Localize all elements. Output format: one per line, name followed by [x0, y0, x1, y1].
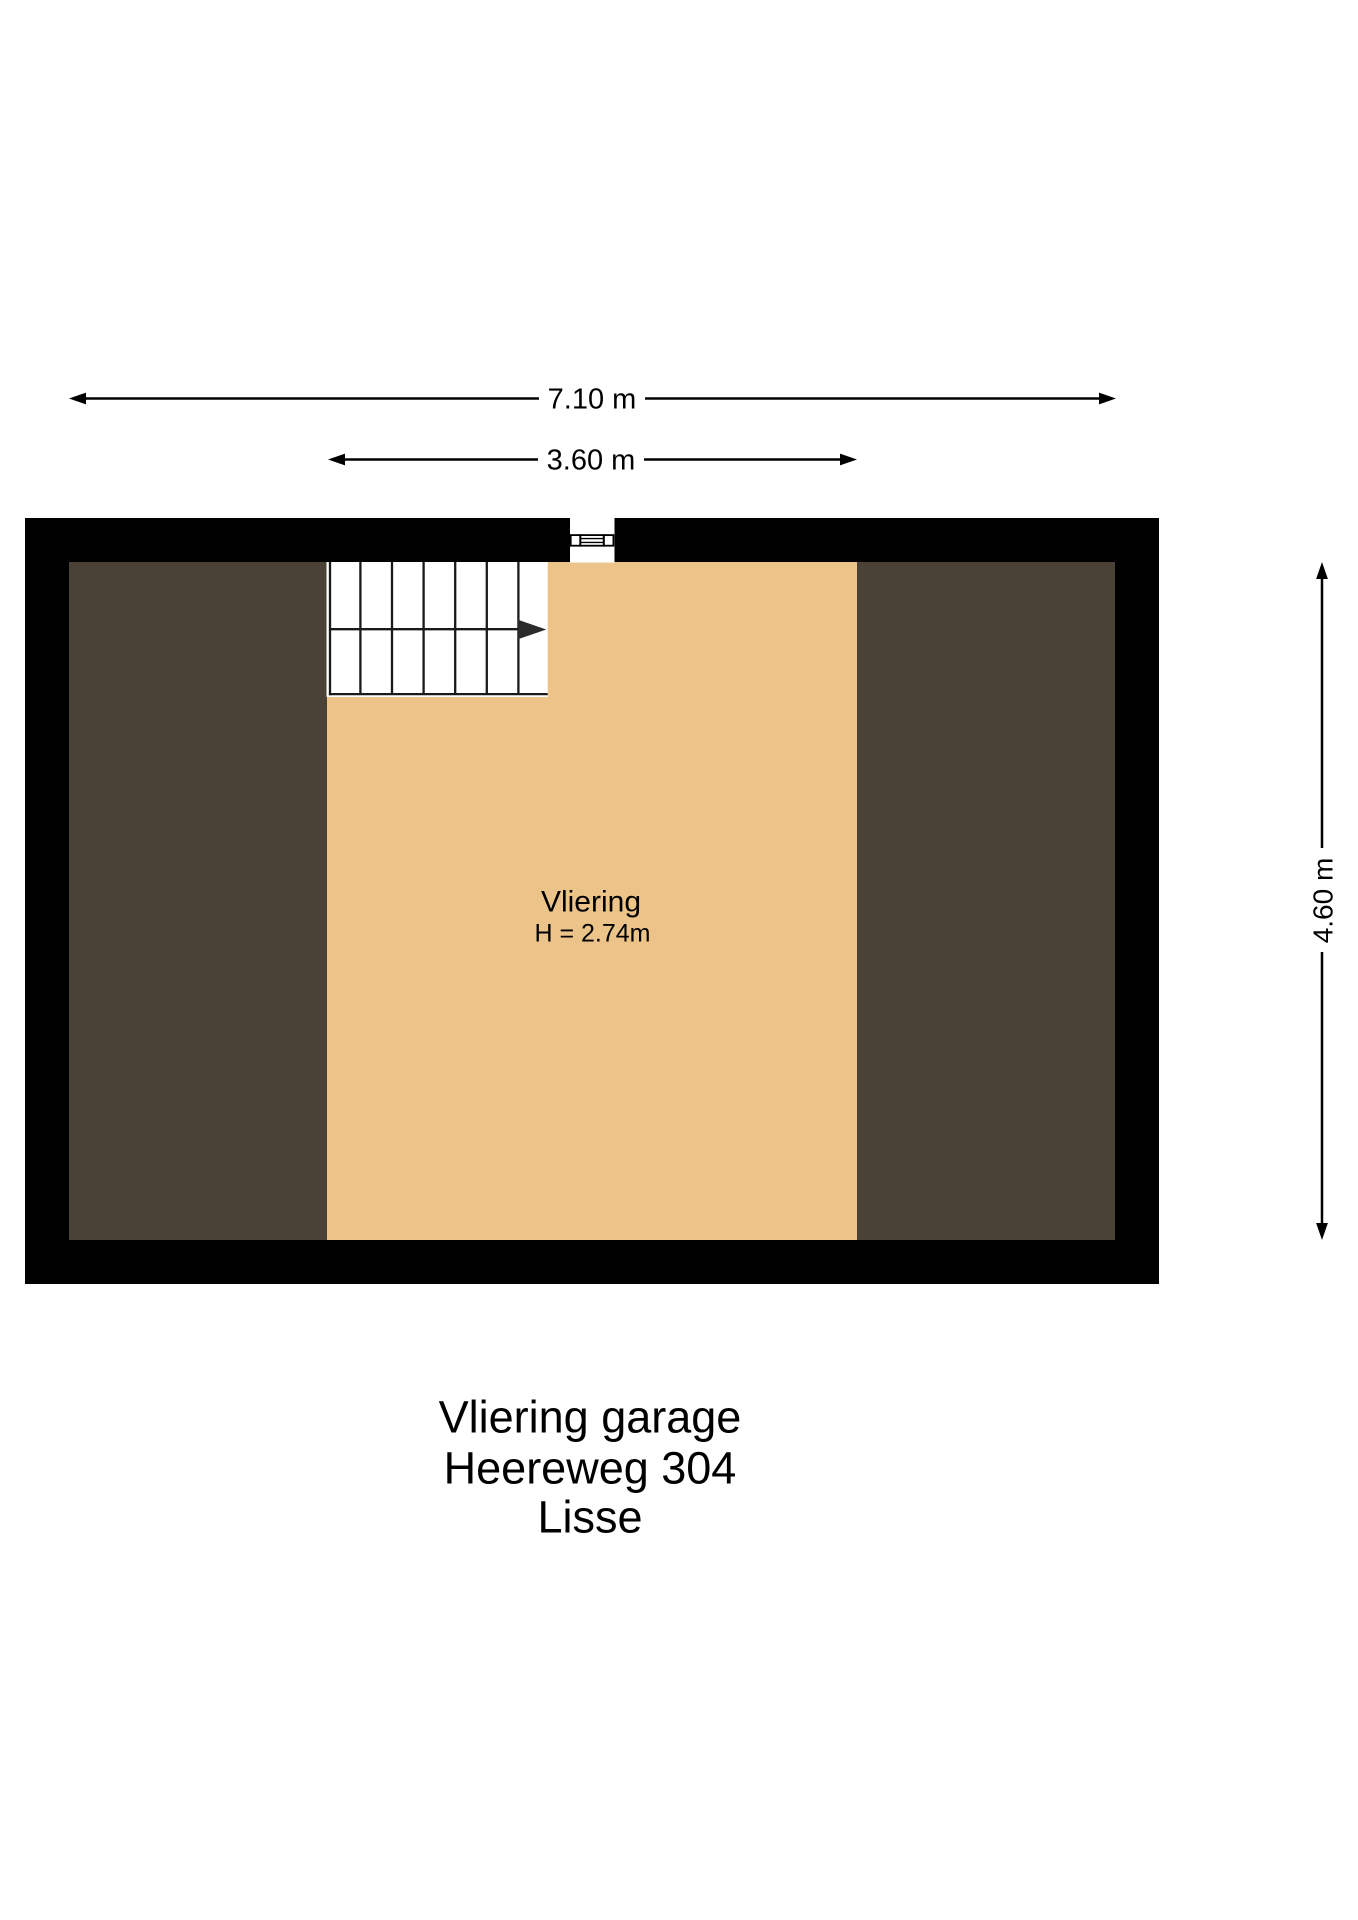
- svg-text:7.10 m: 7.10 m: [548, 384, 637, 416]
- svg-text:Heereweg 304: Heereweg 304: [444, 1443, 737, 1494]
- svg-text:Lisse: Lisse: [537, 1491, 642, 1542]
- svg-text:Vliering: Vliering: [541, 886, 641, 919]
- svg-text:3.60 m: 3.60 m: [547, 445, 636, 477]
- svg-text:Vliering garage: Vliering garage: [439, 1392, 742, 1443]
- svg-text:H = 2.74m: H = 2.74m: [534, 920, 650, 948]
- svg-text:4.60 m: 4.60 m: [1308, 858, 1339, 944]
